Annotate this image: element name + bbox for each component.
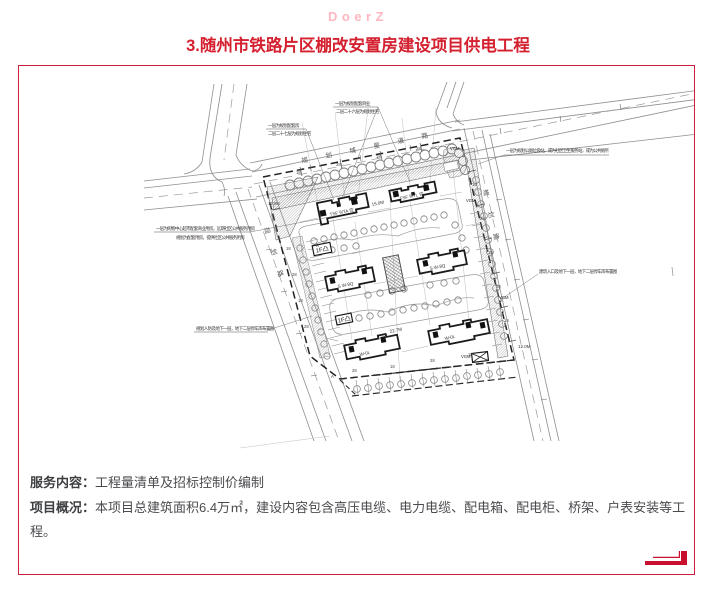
svg-text:28: 28 bbox=[416, 146, 421, 151]
svg-text:A: A bbox=[331, 374, 334, 379]
svg-text:12.0M: 12.0M bbox=[268, 201, 280, 206]
svg-text:规划为配套用房，提供社区公共服务用房: 规划为配套用房，提供社区公共服务用房 bbox=[176, 234, 245, 241]
svg-text:15.0M: 15.0M bbox=[371, 200, 384, 207]
svg-text:规划人防及地下一层，地下二层停车库布置图: 规划人防及地下一层，地下二层停车库布置图 bbox=[196, 325, 275, 332]
svg-text:VGM: VGM bbox=[450, 146, 460, 151]
svg-text:28: 28 bbox=[336, 162, 341, 167]
svg-text:18: 18 bbox=[390, 364, 395, 369]
svg-text:一层为规划配套房: 一层为规划配套房 bbox=[268, 122, 300, 129]
svg-text:28: 28 bbox=[352, 368, 357, 373]
svg-text:18: 18 bbox=[296, 170, 301, 175]
svg-text:22.7M: 22.7M bbox=[389, 327, 402, 334]
svg-text:18: 18 bbox=[472, 182, 477, 187]
svg-text:A: A bbox=[316, 243, 319, 248]
svg-text:一层为购物中心超市配套商业用房，远期社区公共服务用房: 一层为购物中心超市配套商业用房，远期社区公共服务用房 bbox=[156, 225, 256, 232]
svg-text:28: 28 bbox=[480, 216, 485, 221]
svg-text:二层二十七层为规划住宅: 二层二十七层为规划住宅 bbox=[268, 130, 312, 137]
svg-text:18: 18 bbox=[468, 352, 473, 357]
svg-text:28: 28 bbox=[304, 324, 309, 329]
svg-text:18: 18 bbox=[298, 298, 303, 303]
svg-text:28: 28 bbox=[292, 272, 297, 277]
svg-text:一层为规划配套商业: 一层为规划配套商业 bbox=[335, 100, 371, 107]
svg-text:18: 18 bbox=[286, 246, 291, 251]
svg-text:二层二十六层为规划住宅: 二层二十六层为规划住宅 bbox=[336, 108, 380, 115]
svg-text:建筑入口及地下一层，地下二层停车库布置图: 建筑入口及地下一层，地下二层停车库布置图 bbox=[539, 268, 618, 275]
svg-text:12.0M: 12.0M bbox=[518, 344, 531, 349]
svg-text:28: 28 bbox=[496, 284, 501, 289]
svg-text:18: 18 bbox=[488, 250, 493, 255]
svg-text:一层为规划公厕垃圾站，或为社区卫生服务站，或为公共厕所: 一层为规划公厕垃圾站，或为社区卫生服务站，或为公共厕所 bbox=[506, 147, 610, 154]
svg-text:18: 18 bbox=[504, 318, 509, 323]
svg-text:VGM: VGM bbox=[499, 295, 509, 300]
svg-text:28: 28 bbox=[430, 358, 435, 363]
svg-text:18: 18 bbox=[376, 154, 381, 159]
svg-text:VGM: VGM bbox=[466, 198, 476, 203]
